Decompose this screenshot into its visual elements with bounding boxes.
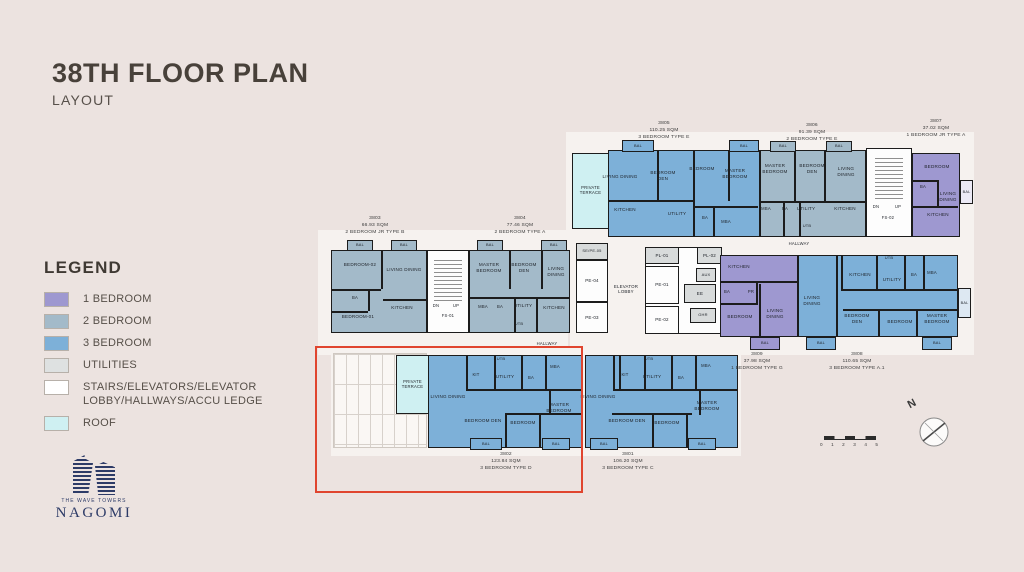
balcony: BAL <box>922 337 952 350</box>
wall <box>713 208 715 236</box>
room-label: KITCHEN <box>386 305 418 311</box>
room-label: KITCHEN <box>607 207 643 213</box>
caption-line: 3809 <box>702 352 812 359</box>
caption-line: 2 BEDROOM TYPE E <box>757 137 867 144</box>
wall <box>913 180 939 182</box>
room-label: UTB <box>880 256 898 261</box>
room-pe-04: PE-04 <box>576 260 608 302</box>
wall <box>614 389 737 391</box>
room-label: BEDROOM DEN <box>507 262 541 273</box>
room-ee: EE <box>684 284 716 303</box>
room-label: LIVING DINING <box>386 267 422 273</box>
room-label: DN <box>868 204 884 209</box>
balcony: BAL <box>729 140 759 152</box>
wall <box>693 151 695 236</box>
room-label: UTILITY <box>877 277 907 283</box>
balcony: BAL <box>477 240 503 251</box>
scale-bar-line <box>824 436 876 440</box>
room-label: MASTER BEDROOM <box>918 313 956 324</box>
room-label: UTB <box>509 322 529 327</box>
room-label: PR <box>744 289 758 294</box>
room-label: BEDROOM-02 <box>339 262 381 268</box>
caption-line: 66.93 SQM <box>320 223 430 230</box>
room-label: LIVING DINING <box>761 308 789 319</box>
caption-line: 3805 <box>609 121 719 128</box>
room-label: MASTER BEDROOM <box>714 168 756 179</box>
room-label: BEDROOM <box>723 314 757 320</box>
caption-line: 110.65 SQM <box>802 359 912 366</box>
caption-line: 3808 <box>802 352 912 359</box>
room-label: LIVING DINING <box>602 174 638 180</box>
room-label: MASTER BEDROOM <box>688 400 726 411</box>
balcony: BAL <box>806 337 836 350</box>
caption-line: 3803 <box>320 216 430 223</box>
scale-tick: 2 <box>842 442 845 447</box>
brand-name: NAGOMI <box>46 505 142 522</box>
room-se-pe-05: SE/PE-05 <box>576 243 608 260</box>
room-label: BEDROOM-01 <box>337 314 379 320</box>
brand-logo: THE WAVE TOWERS NAGOMI <box>46 453 142 522</box>
room-label: KIT <box>615 372 635 377</box>
room-pe-02: PE-02 <box>645 306 679 334</box>
wall <box>843 309 957 311</box>
room-label: MBA <box>756 206 776 211</box>
room-label: UP <box>448 303 464 308</box>
caption-line: 3807 <box>881 119 991 126</box>
caption-line: 3804 <box>465 216 575 223</box>
wall <box>824 151 826 201</box>
room-label: ELEVATOR LOBBY <box>607 284 645 295</box>
caption-line: 3 BEDROOM TYPE E <box>609 135 719 142</box>
wall <box>671 356 673 389</box>
room-label: BA <box>673 375 689 380</box>
room-label: MASTER BEDROOM <box>757 163 793 174</box>
room-label: MBA <box>716 219 736 224</box>
wall <box>383 299 427 301</box>
room-label: UP <box>890 204 906 209</box>
caption-3803: 380366.93 SQM2 BEDROOM JR TYPE B <box>320 216 430 237</box>
room-label: BEDROOM DEN <box>839 313 875 324</box>
caption-3804: 380477.46 SQM2 BEDROOM TYPE A <box>465 216 575 237</box>
scale-tick: 3 <box>853 442 856 447</box>
caption-line: 2 BEDROOM JR TYPE B <box>320 230 430 237</box>
room-pl-01: PL-01 <box>645 247 679 264</box>
wall <box>794 151 796 201</box>
caption-line: 3 BEDROOM TYPE A.1 <box>802 366 912 373</box>
wall <box>721 281 797 283</box>
wall <box>381 251 383 289</box>
wall <box>876 256 878 289</box>
wall <box>695 356 697 389</box>
unit-3805 <box>608 150 760 237</box>
stair-steps-fs02 <box>875 158 903 202</box>
compass: N <box>902 398 954 454</box>
caption-line: 3801 <box>573 452 683 459</box>
room-label: BA <box>492 304 508 309</box>
wall <box>332 289 381 291</box>
balcony: BAL <box>622 140 654 152</box>
caption-line: 77.46 SQM <box>465 223 575 230</box>
scale-tick: 1 <box>831 442 834 447</box>
caption-line: 3806 <box>757 123 867 130</box>
room-label: BA <box>915 184 931 189</box>
room-label: BA <box>696 215 714 220</box>
balcony: BAL <box>590 438 618 450</box>
room-label: KITCHEN <box>724 264 754 270</box>
wall <box>878 311 880 337</box>
balcony: BAL <box>391 240 417 251</box>
room-label: FS-02 <box>874 215 902 220</box>
balcony: BAL <box>347 240 373 251</box>
caption-line: 110.25 SQM <box>609 128 719 135</box>
wall <box>368 291 370 311</box>
room-ghr: GHR <box>690 308 716 323</box>
room-label: BEDROOM DEN <box>645 170 681 181</box>
room-label: BA <box>346 295 364 300</box>
room-label: UTILITY <box>660 211 694 217</box>
room-label: MBA <box>473 304 493 309</box>
tower-right-shape <box>95 462 115 495</box>
room-label: KITCHEN <box>921 212 955 218</box>
room-label: UTILITY <box>509 303 537 309</box>
room-label: BA <box>907 272 921 277</box>
caption-line: 106.20 SQM <box>573 459 683 466</box>
room-label: MASTER BEDROOM <box>470 262 508 273</box>
caption-3805: 3805110.25 SQM3 BEDROOM TYPE E <box>609 121 719 142</box>
balcony: BAL <box>750 337 780 350</box>
room-aux: AUX <box>696 268 716 282</box>
caption-3809: 380937.98 SQM1 BEDROOM TYPE G <box>702 352 812 373</box>
wall <box>841 256 843 289</box>
room-label: BEDROOM DEN <box>608 418 646 424</box>
highlight-unit-3802 <box>315 346 583 493</box>
tower-left-shape <box>73 455 93 495</box>
caption-line: 37.02 SQM <box>881 126 991 133</box>
wall <box>904 256 906 289</box>
room-pe-01: PE-01 <box>645 266 679 304</box>
room-label: KITCHEN <box>829 206 861 212</box>
room-label: DN <box>428 303 444 308</box>
room-label: KITCHEN <box>844 272 876 278</box>
wall <box>721 303 758 305</box>
caption-line: 1 BEDROOM JR TYPE A <box>881 133 991 140</box>
caption-line: 2 BEDROOM TYPE A <box>465 230 575 237</box>
room-label: FS-01 <box>434 313 462 318</box>
room-label: UTILITY <box>791 206 821 212</box>
room-label: LIVING DINING <box>539 266 573 277</box>
room-label: BEDROOM <box>883 319 917 325</box>
balcony: BAL <box>541 240 567 251</box>
wall <box>695 206 758 208</box>
room-pe-03: PE-03 <box>576 302 608 333</box>
caption-3808: 3808110.65 SQM3 BEDROOM TYPE A.1 <box>802 352 912 373</box>
room-label: BEDROOM DEN <box>795 163 829 174</box>
caption-3807: 380737.02 SQM1 BEDROOM JR TYPE A <box>881 119 991 140</box>
wall <box>761 201 865 203</box>
scale-tick: 5 <box>875 442 878 447</box>
room-label: LIVING DINING <box>933 191 963 202</box>
room-label: HALLWAY <box>779 241 819 246</box>
wall <box>332 311 368 313</box>
caption-line: 37.98 SQM <box>702 359 812 366</box>
room-label: UTILITY <box>637 374 667 380</box>
caption-line: 1 BEDROOM TYPE G <box>702 366 812 373</box>
brand-tagline: THE WAVE TOWERS <box>46 498 142 504</box>
room-label: LIVING DINING <box>580 394 616 400</box>
scale-ticks: 012345 <box>820 442 878 447</box>
room-label: BEDROOM <box>920 164 954 170</box>
wall <box>470 297 569 299</box>
caption-line: 91.39 SQM <box>757 130 867 137</box>
caption-3806: 380691.39 SQM2 BEDROOM TYPE E <box>757 123 867 144</box>
balcony: BAL <box>688 438 716 450</box>
balcony-3808-side: BAL <box>958 288 971 318</box>
scale-bar: 012345 <box>820 436 880 447</box>
caption-3801: 3801106.20 SQM3 BEDROOM TYPE C <box>573 452 683 473</box>
room-label: LIVING DINING <box>795 295 829 306</box>
room-label: LIVING DINING <box>829 166 863 177</box>
terrace-3805: PRIVATE TERRACE <box>572 153 609 229</box>
stair-steps-fs01 <box>434 260 462 302</box>
room-pl-02: PL-02 <box>697 247 722 264</box>
room-label: KITCHEN <box>539 305 569 311</box>
wall <box>609 200 693 202</box>
room-label: UTB <box>797 224 817 229</box>
room-label: BA <box>720 289 734 294</box>
wall <box>836 256 838 337</box>
room-label: MBA <box>922 270 942 275</box>
caption-line: 3 BEDROOM TYPE C <box>573 466 683 473</box>
wall <box>841 289 957 291</box>
floor-plan: PRIVATE TERRACEBALSE/PE-05PE-04PE-03PL-0… <box>0 0 1024 572</box>
compass-north-label: N <box>906 397 919 411</box>
towers-icon <box>72 453 116 495</box>
room-label: BEDROOM <box>650 420 684 426</box>
compass-rose-icon <box>918 416 950 448</box>
scale-tick: 4 <box>864 442 867 447</box>
wall <box>913 206 958 208</box>
room-label: UTB <box>639 357 659 362</box>
scale-tick: 0 <box>820 442 823 447</box>
